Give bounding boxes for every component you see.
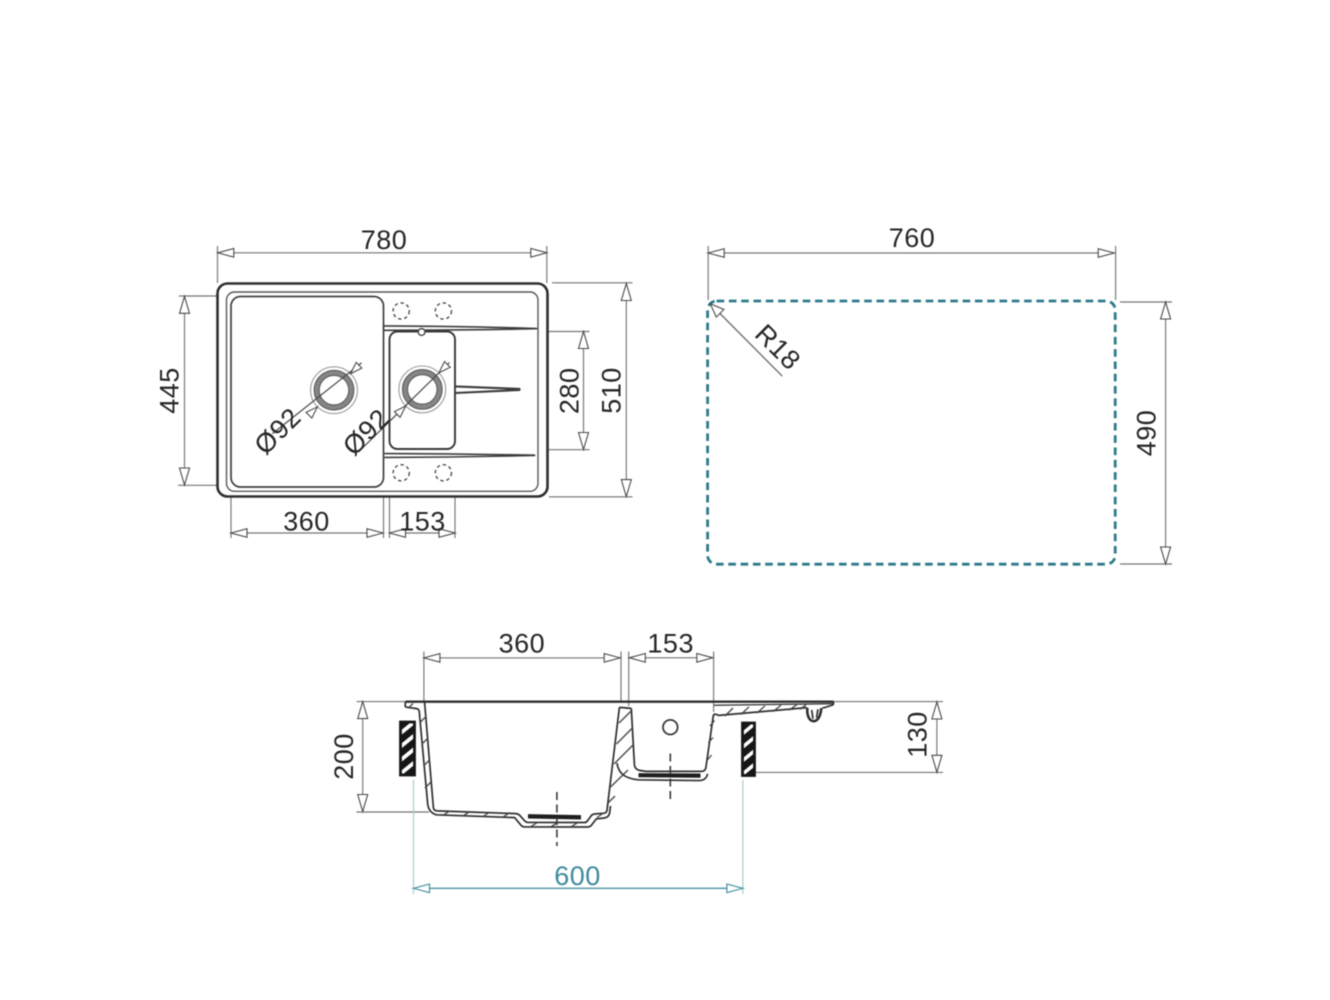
svg-text:760: 760 [889, 223, 936, 253]
svg-text:600: 600 [554, 861, 601, 891]
svg-text:153: 153 [647, 629, 694, 659]
svg-text:360: 360 [499, 629, 546, 659]
svg-text:280: 280 [555, 368, 585, 415]
svg-text:153: 153 [399, 507, 446, 537]
svg-text:200: 200 [329, 733, 359, 780]
svg-text:445: 445 [155, 367, 185, 414]
svg-text:780: 780 [361, 225, 408, 255]
svg-text:130: 130 [903, 711, 933, 758]
svg-text:490: 490 [1132, 410, 1162, 457]
svg-text:360: 360 [283, 507, 330, 537]
svg-text:510: 510 [597, 367, 627, 414]
